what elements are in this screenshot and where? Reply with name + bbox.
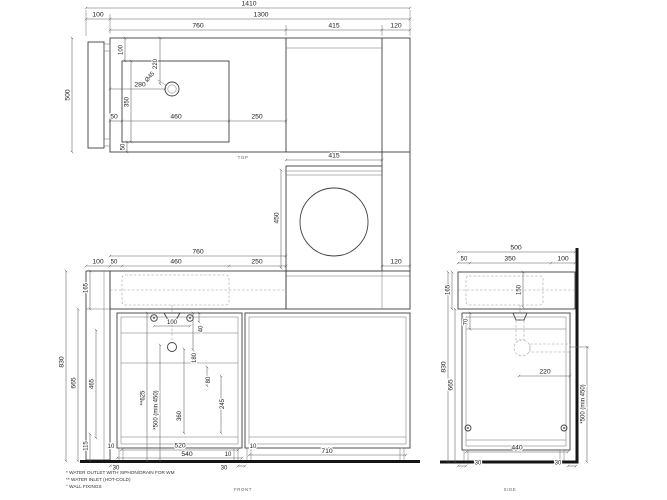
dim-siphon-offset: 220 xyxy=(539,369,551,376)
dim-bay-width: 710 xyxy=(321,448,333,455)
top-view: 1410 100 1300 760 415 120 500 100 220 Ø4… xyxy=(65,1,411,161)
dim-drain-from-top: 220 xyxy=(153,58,159,69)
dim-depth: 500 xyxy=(65,89,72,101)
siphon-trap xyxy=(514,340,530,356)
side-view-caption: SIDE xyxy=(504,487,517,492)
dim-side-30-right: 30 xyxy=(555,461,562,467)
dim-side-30-left: 30 xyxy=(475,461,482,467)
dim-sink-offset-top: 100 xyxy=(119,44,125,55)
dim-drain-from-left: 280 xyxy=(134,82,146,89)
dim-bottom-540: 540 xyxy=(181,451,193,458)
front-outline xyxy=(80,271,420,462)
top-view-dimensions: 1410 100 1300 760 415 120 500 100 220 Ø4… xyxy=(65,1,411,153)
dim-inlet-spacing: 100 xyxy=(167,320,178,326)
dim-left-panel: 100 xyxy=(92,12,104,19)
dim-wm-elev-height: 450 xyxy=(274,212,281,224)
dim-bottom-30-right: 30 xyxy=(221,466,228,472)
side-dimensions: 500 50 350 100 165 830 665 150 70 220 *5… xyxy=(441,245,590,467)
dim-wm-elev-width: 415 xyxy=(328,153,340,160)
siphon-pipe xyxy=(516,320,524,340)
dim-sink-width: 460 xyxy=(170,114,182,121)
dim-bottom-10-left: 10 xyxy=(108,444,115,450)
dim-side-counter-height: 165 xyxy=(446,284,452,295)
front-view-caption: FRONT xyxy=(234,487,252,492)
dim-front-sink-width: 460 xyxy=(170,259,182,266)
outlet-pipe xyxy=(530,344,570,352)
dim-side-total-height: 830 xyxy=(441,361,448,373)
side-bracket-front xyxy=(86,271,110,460)
dim-sink-depth: 350 xyxy=(125,96,131,107)
dim-40: 40 xyxy=(199,325,205,332)
dim-sink-offset-bottom: 50 xyxy=(121,143,127,150)
dim-drain-diameter: Ø45 xyxy=(144,71,156,84)
side-view: 500 50 350 100 165 830 665 150 70 220 *5… xyxy=(440,245,589,493)
siphon-flange-side xyxy=(513,313,527,320)
dim-front-counter-right: 250 xyxy=(251,259,263,266)
water-outlet xyxy=(168,343,177,352)
dim-side-100: 100 xyxy=(557,256,569,263)
dim-drawer-zone: 465 xyxy=(90,378,96,389)
footnotes: * WATER OUTLET WITH SIPHON/DRAIN FOR WM … xyxy=(66,470,175,489)
dim-overall-width: 1410 xyxy=(241,1,256,8)
dim-360: 360 xyxy=(177,410,183,421)
dim-180: 180 xyxy=(192,352,198,363)
front-dimensions: 760 100 50 460 250 120 830 665 165 465 1… xyxy=(59,249,411,472)
dim-basin-depth: 150 xyxy=(517,284,523,295)
footnote-water-outlet: * WATER OUTLET WITH SIPHON/DRAIN FOR WM xyxy=(66,470,175,475)
top-view-outline xyxy=(88,38,410,152)
side-plumbing xyxy=(465,305,570,431)
dim-sink-offset-left: 50 xyxy=(110,114,118,121)
top-view-caption: TOP xyxy=(238,155,249,160)
dim-245: 245 xyxy=(220,398,226,409)
dim-front-counter-width: 760 xyxy=(192,249,204,256)
front-view: 760 100 50 460 250 120 830 665 165 465 1… xyxy=(59,249,421,493)
footnote-water-inlet: ** WATER INLET (HOT-COLD) xyxy=(66,477,131,482)
dim-body-width: 1300 xyxy=(253,12,268,19)
dim-front-side-panel: 120 xyxy=(390,259,402,266)
dim-wm-width: 415 xyxy=(328,23,340,30)
dim-bottom-10-mid-lower: 10 xyxy=(225,452,232,458)
dim-counter-width: 760 xyxy=(192,23,204,30)
dim-side-depth: 500 xyxy=(510,245,522,252)
dim-bottom-10-mid-upper: 10 xyxy=(250,444,257,450)
dim-counter-height: 165 xyxy=(84,282,90,293)
footnote-wall-fixings: ° WALL FIXINGS xyxy=(66,484,102,489)
dim-total-height: 830 xyxy=(59,356,66,368)
dim-side-panel: 120 xyxy=(390,23,402,30)
dim-side-50: 50 xyxy=(461,257,468,263)
siphon-flange-front xyxy=(164,313,180,320)
dim-outlet-height: *500 (min 450) xyxy=(154,390,160,429)
side-outline xyxy=(440,248,578,464)
dim-counter-right: 250 xyxy=(251,114,263,121)
side-bracket-top-view xyxy=(88,42,104,148)
dim-front-sink-offset: 50 xyxy=(111,260,118,266)
dim-rail-70: 70 xyxy=(464,318,470,325)
dim-80: 80 xyxy=(206,376,212,383)
dim-side-body-height: 665 xyxy=(448,379,455,391)
dim-side-350: 350 xyxy=(504,256,516,263)
wm-bay xyxy=(245,313,410,448)
dim-body-height: 665 xyxy=(71,377,78,389)
side-cabinet xyxy=(462,313,570,450)
basin-outline xyxy=(122,61,229,142)
hidden-basin-side xyxy=(466,276,543,305)
dim-inlet-height: **625 xyxy=(141,390,147,405)
technical-drawing-page: 1410 100 1300 760 415 120 500 100 220 Ø4… xyxy=(0,0,667,500)
wm-elevation: 415 450 xyxy=(274,152,411,271)
vanity-technical-drawing: 1410 100 1300 760 415 120 500 100 220 Ø4… xyxy=(0,0,667,500)
dim-plinth: 115 xyxy=(84,441,90,451)
drain-hole xyxy=(165,82,179,96)
front-plumbing xyxy=(151,313,194,352)
dim-front-left-panel: 100 xyxy=(92,259,104,266)
wm-door xyxy=(300,188,368,256)
dim-bottom-440: 440 xyxy=(511,445,523,452)
dim-side-outlet-height: *500 (min 450) xyxy=(581,384,587,423)
dim-bottom-520: 520 xyxy=(174,443,186,450)
